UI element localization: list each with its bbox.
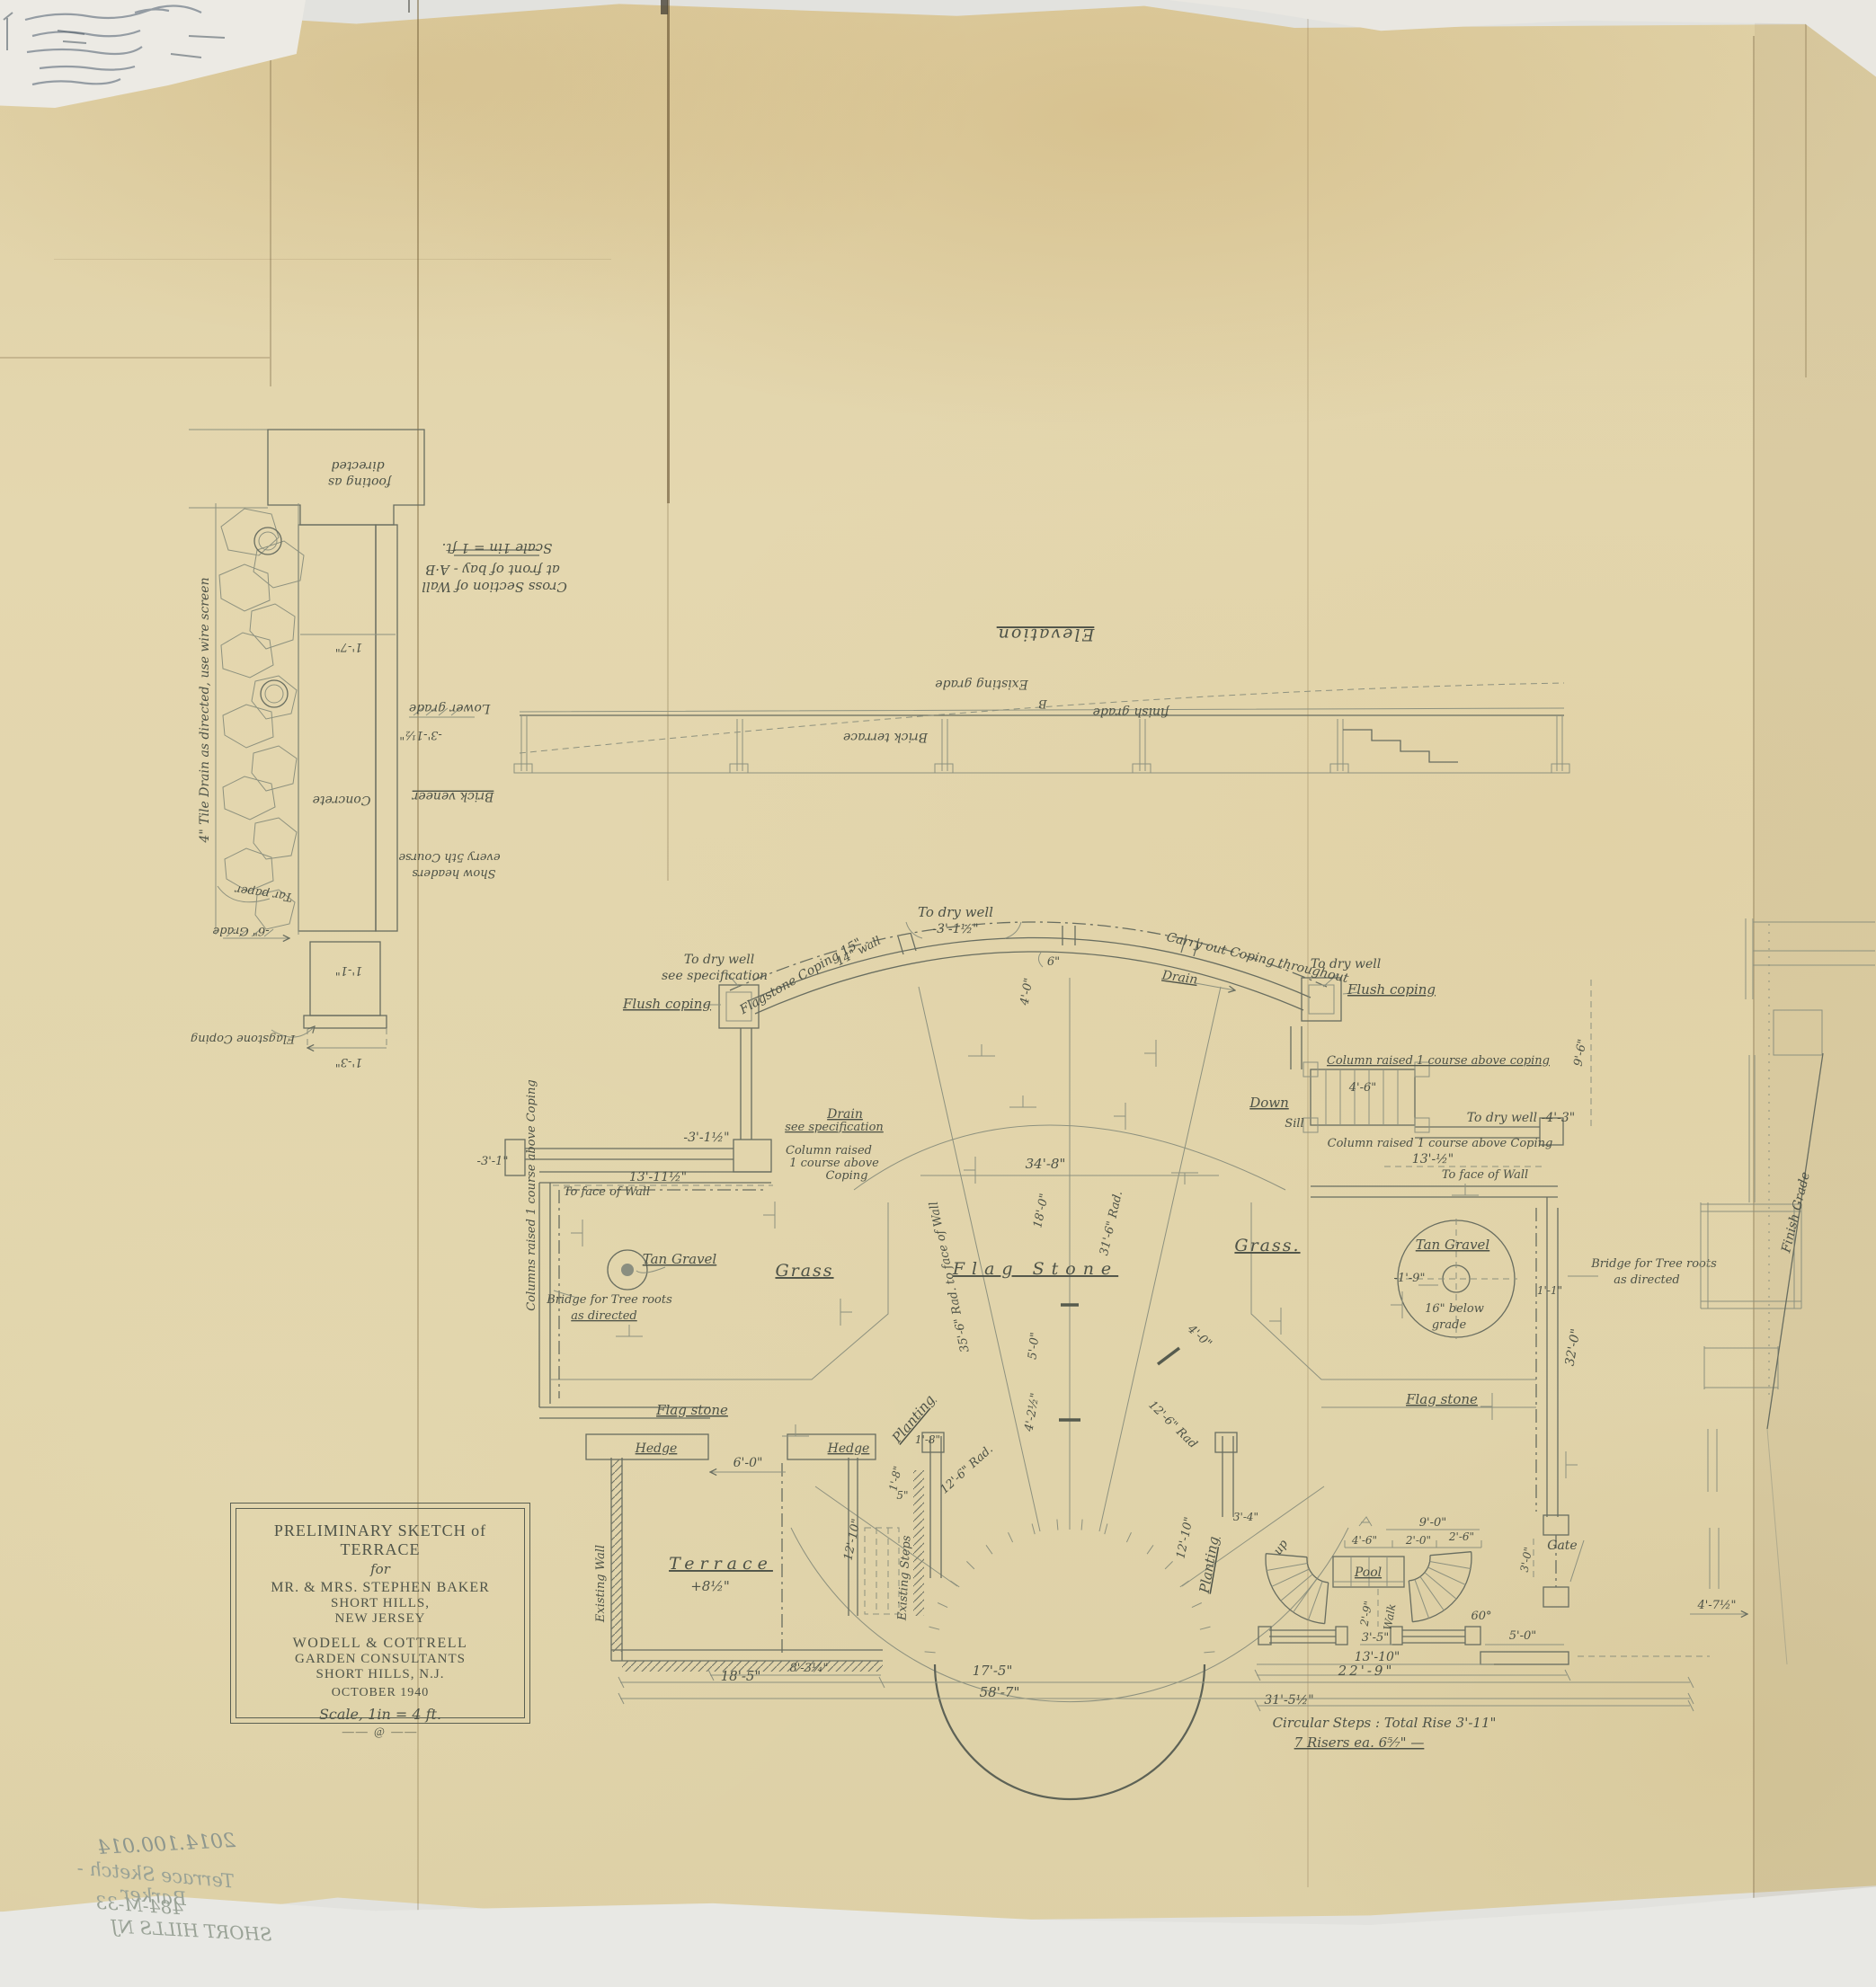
elevation-existing-grade: Existing grade [935, 677, 1029, 691]
dim-label: 22'-9" [1338, 1663, 1395, 1679]
cs-dim: 1'-3" [335, 1055, 363, 1069]
client-city: SHORT HILLS, [236, 1596, 524, 1611]
note-flush-coping: Flush coping [1347, 981, 1436, 998]
dim-label: 5'-0" [1026, 1332, 1042, 1361]
dim-label: 32'-0" [1563, 1327, 1584, 1367]
label-terrace: Terrace [669, 1554, 773, 1574]
wall-cross-section: Scale 1in = 1 ft. at front of bay - A·B … [189, 430, 567, 1069]
registration-mark [661, 0, 668, 14]
note-columns-vertical: Columns raised 1 course above Coping [525, 1079, 538, 1310]
right-edge-detail: Finish Grade [1701, 918, 1875, 1664]
a-mark [1359, 1517, 1372, 1526]
dim-label: 60° [1471, 1610, 1491, 1623]
note-circular-steps: Circular Steps : Total Rise 3'-11" [1273, 1715, 1497, 1731]
cs-flagstone-coping: Flagstone Coping [191, 1032, 296, 1045]
hedge-hatch-ticks [925, 1520, 1215, 1653]
firm-city: SHORT HILLS, N.J. [236, 1667, 524, 1682]
label-pool: Pool [1354, 1566, 1382, 1580]
dim-label: 4'-0" [1184, 1322, 1214, 1351]
dim-label: 31'-5½" [1264, 1693, 1313, 1708]
label-planting: Planting [1196, 1535, 1223, 1595]
title-block-inner-border: PRELIMINARY SKETCH of TERRACE for MR. & … [236, 1508, 525, 1718]
dim-label: 2'-0" [1405, 1534, 1431, 1547]
label-tan-gravel: Tan Gravel [1416, 1237, 1490, 1253]
coping-slab [304, 1016, 387, 1028]
dim-radius: 12'-6" Rad [1145, 1398, 1199, 1451]
cs-title: Cross Section of Wall [422, 579, 567, 595]
gate-post [1543, 1515, 1569, 1535]
client-name: MR. & MRS. STEPHEN BAKER [236, 1580, 524, 1596]
label-flag-stone: Flag stone [655, 1402, 728, 1418]
brick-pier [310, 942, 380, 1016]
hedge-semicircle [935, 1664, 1205, 1799]
note-to-dry-well: To dry well [684, 953, 754, 967]
dim-label: 9'-0" [1419, 1516, 1447, 1530]
dim-label: 3'-4" [1233, 1511, 1258, 1523]
note-column-raised: Column raised 1 course above coping [1327, 1054, 1550, 1068]
label-hedge: Hedge [635, 1441, 678, 1456]
steps-profile [1343, 730, 1458, 762]
elevation-view: Elevation Existing grade B finish grade … [514, 625, 1569, 773]
wall-hatch [1480, 1652, 1569, 1664]
cs-headers-note: every 5th Course [398, 850, 500, 864]
dim-label: 12'-10" [1174, 1516, 1196, 1560]
note-flush-coping: Flush coping [622, 996, 711, 1012]
monogram-mark: —— @ —— [236, 1725, 524, 1739]
dim-label: 4'-7½" [1696, 1599, 1736, 1612]
dim-label: 1'-8" [915, 1433, 940, 1446]
drawing-date: OCTOBER 1940 [236, 1686, 524, 1700]
existing-wall-hatch [611, 1459, 622, 1652]
cs-brick-veneer: Brick veneer [411, 789, 494, 803]
concrete-core [298, 525, 376, 931]
label-existing-steps: Existing Steps [895, 1535, 913, 1622]
elevation-brick-terrace: Brick terrace [843, 730, 929, 744]
label-terrace-elevation: +8½" [690, 1578, 730, 1594]
existing-grade-line [520, 683, 1564, 753]
note-to-dry-well: To dry well [918, 904, 993, 920]
dim-label: 4'-0" [1018, 977, 1036, 1007]
label-hedge: Hedge [827, 1441, 870, 1456]
label-tan-gravel: Tan Gravel [643, 1251, 717, 1267]
cs-scale: Scale 1in = 1 ft. [442, 540, 553, 556]
label-grass: Grass [775, 1261, 833, 1281]
elevation-title: Elevation [997, 625, 1096, 644]
label-gate: Gate [1547, 1539, 1577, 1553]
firm-name: WODELL & COTTRELL [236, 1636, 524, 1652]
note-column-raised: 1 course above [789, 1157, 879, 1170]
pencil-scribbles [4, 0, 668, 84]
note-below-grade: grade [1432, 1318, 1467, 1332]
firm-role: GARDEN CONSULTANTS [236, 1652, 524, 1667]
dim-label: 6'-0" [734, 1456, 763, 1470]
client-state: NEW JERSEY [236, 1611, 524, 1627]
note-drain: Drain [1160, 968, 1199, 988]
dim-label: 17'-5" [973, 1663, 1013, 1679]
note-to-face: To face of Wall [1442, 1168, 1528, 1182]
dim-label: 18'-0" [1031, 1193, 1052, 1229]
dim-label: 3'-5" [1362, 1631, 1390, 1645]
dim-label: 58'-7" [980, 1684, 1020, 1700]
dim-label: 1'-8" [886, 1465, 904, 1492]
post-feet [514, 764, 1569, 773]
note-below-grade: 16" below [1425, 1302, 1484, 1316]
dim-label: 6" [1047, 955, 1060, 969]
site-plan: To dry well -3'-1½" Flagstone Coping 15"… [477, 904, 1747, 1799]
dim-label: 2'-6" [1448, 1530, 1474, 1543]
note-column-raised: Column raised 1 course above Coping [1328, 1137, 1553, 1150]
wall-hatch [913, 1470, 924, 1616]
elevation-b-mark: B [1038, 696, 1048, 710]
note-bridge-roots: Bridge for Tree roots [546, 1293, 672, 1307]
dim-radius: 12'-6" Rad. [938, 1442, 995, 1496]
cs-tile-drain-note: 4" Tile Drain as directed, use wire scre… [198, 577, 212, 843]
drawing-scale: Scale, 1in = 4 ft. [236, 1706, 524, 1723]
elevation-finish-grade: finish grade [1093, 705, 1170, 719]
dim-label: 3'-0" [1518, 1546, 1535, 1573]
dim-label: 4'-6" [1351, 1534, 1377, 1547]
brick-veneer [376, 525, 397, 931]
cs-lower-grade: Lower grade [409, 701, 491, 715]
note-bridge-roots: as directed [571, 1309, 636, 1323]
dim-label: 12'-10" [841, 1518, 863, 1562]
scanned-drawing-sheet: Scale 1in = 1 ft. at front of bay - A·B … [0, 0, 1876, 1987]
dim-label: 18'-5" [721, 1668, 761, 1684]
cs-dim: 1'-7" [335, 640, 363, 653]
title-for: for [236, 1561, 524, 1577]
note-to-dry-well: To dry well -4'-3" [1467, 1111, 1575, 1125]
note-bridge-roots: as directed [1614, 1273, 1679, 1287]
dim-label: 5'-0" [1509, 1629, 1537, 1643]
note-bridge-roots: Bridge for Tree roots [1590, 1257, 1717, 1271]
dim-label: -3'-1" [477, 1155, 509, 1168]
tree-trunk [621, 1264, 634, 1276]
cs-concrete: Concrete [313, 793, 371, 807]
dim-label: -3'-1½" [932, 922, 978, 936]
dim-label: 2'-9" [1358, 1600, 1375, 1628]
label-existing-wall: Existing Wall [594, 1545, 608, 1623]
dim-label: 4'-2½" [1022, 1392, 1042, 1433]
note-see-spec: see specification [785, 1121, 884, 1134]
dim-radius: 31'-6" Rad. [1098, 1190, 1125, 1257]
dim-label: 9'-6" [1572, 1038, 1590, 1068]
label-grass: Grass. [1234, 1236, 1300, 1255]
note-to-dry-well: To dry well [1311, 957, 1381, 971]
dim-label: 1'-1" [1537, 1284, 1562, 1297]
cs-footing-note: footing as [328, 475, 392, 489]
cs-dim: 1'-1" [335, 963, 363, 977]
dim-label: 8'-3¼" [789, 1662, 828, 1675]
planting-bed-arc [791, 1528, 1348, 1702]
label-down: Down [1249, 1095, 1289, 1111]
circular-steps-left [1266, 1554, 1329, 1624]
dim-label: 4'-6" [1348, 1081, 1377, 1095]
label-finish-grade: Finish Grade [1779, 1171, 1813, 1255]
stone-fill [216, 503, 304, 935]
dim-label: -3'-1½" [683, 1131, 729, 1145]
label-sill: Sill [1285, 1117, 1303, 1131]
note-see-spec: see specification [662, 969, 768, 983]
cs-headers-note: Show headers [412, 866, 495, 880]
dim-label: 13'-½" [1412, 1152, 1454, 1166]
circular-steps-right [1409, 1552, 1471, 1622]
note-to-face: To face of Wall [564, 1185, 650, 1199]
title-block: PRELIMINARY SKETCH of TERRACE for MR. & … [230, 1503, 530, 1724]
note-column-raised: Column raised [786, 1144, 872, 1158]
dim-label: -1'-9" [1394, 1272, 1426, 1285]
note-circular-steps: 7 Risers ea. 6⁵⁄₇" — [1294, 1734, 1425, 1751]
title-line: PRELIMINARY SKETCH of TERRACE [236, 1521, 524, 1559]
cs-subtitle: at front of bay - A·B [425, 562, 560, 578]
note-column-raised: Coping [826, 1169, 868, 1183]
cs-grade: -6" Grade [212, 924, 269, 937]
note-drain: Drain [826, 1107, 863, 1122]
dim-label: 34'-8" [1026, 1156, 1066, 1172]
steps-hatch [1774, 1010, 1822, 1055]
cs-footing-note: directed [331, 458, 384, 473]
dim-label: 13'-11½" [629, 1170, 687, 1184]
gate-post [1543, 1587, 1569, 1607]
cs-dim: -3'-1½" [399, 728, 441, 741]
dim-label: 5" [896, 1489, 908, 1502]
label-flag-stone: Flag stone [1405, 1391, 1478, 1407]
existing-steps-outline [865, 1528, 899, 1614]
label-flag-stone: Flag Stone [952, 1259, 1118, 1279]
